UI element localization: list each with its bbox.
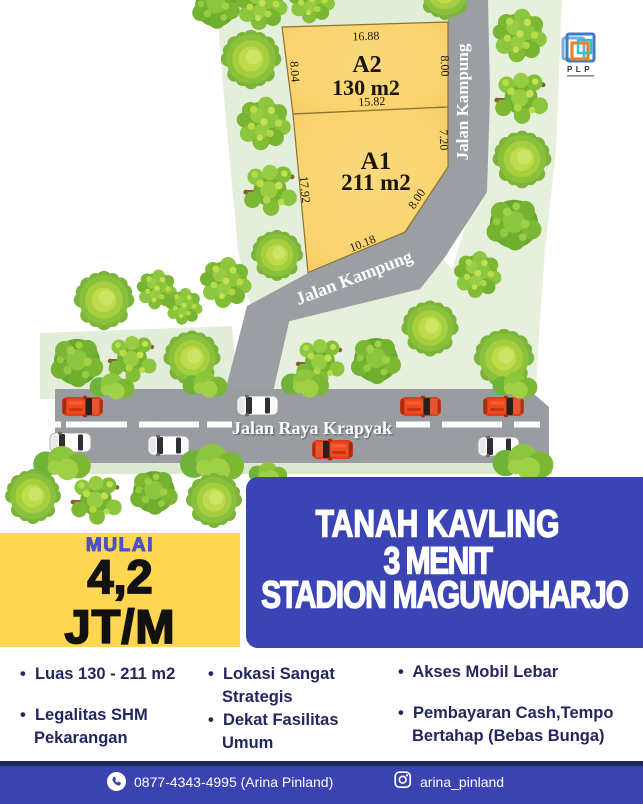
svg-text:7.20: 7.20 (437, 129, 452, 150)
svg-text:130 m2: 130 m2 (332, 75, 400, 100)
svg-text:Jalan Kampung: Jalan Kampung (453, 43, 472, 160)
svg-text:211 m2: 211 m2 (341, 170, 411, 195)
svg-text:8.00: 8.00 (438, 55, 452, 76)
svg-text:17.92: 17.92 (297, 175, 314, 203)
svg-text:16.88: 16.88 (352, 29, 379, 44)
svg-text:Jalan Raya Krapyak: Jalan Raya Krapyak (232, 418, 392, 438)
svg-text:8.04: 8.04 (287, 61, 302, 83)
svg-text:PLP: PLP (567, 65, 593, 74)
